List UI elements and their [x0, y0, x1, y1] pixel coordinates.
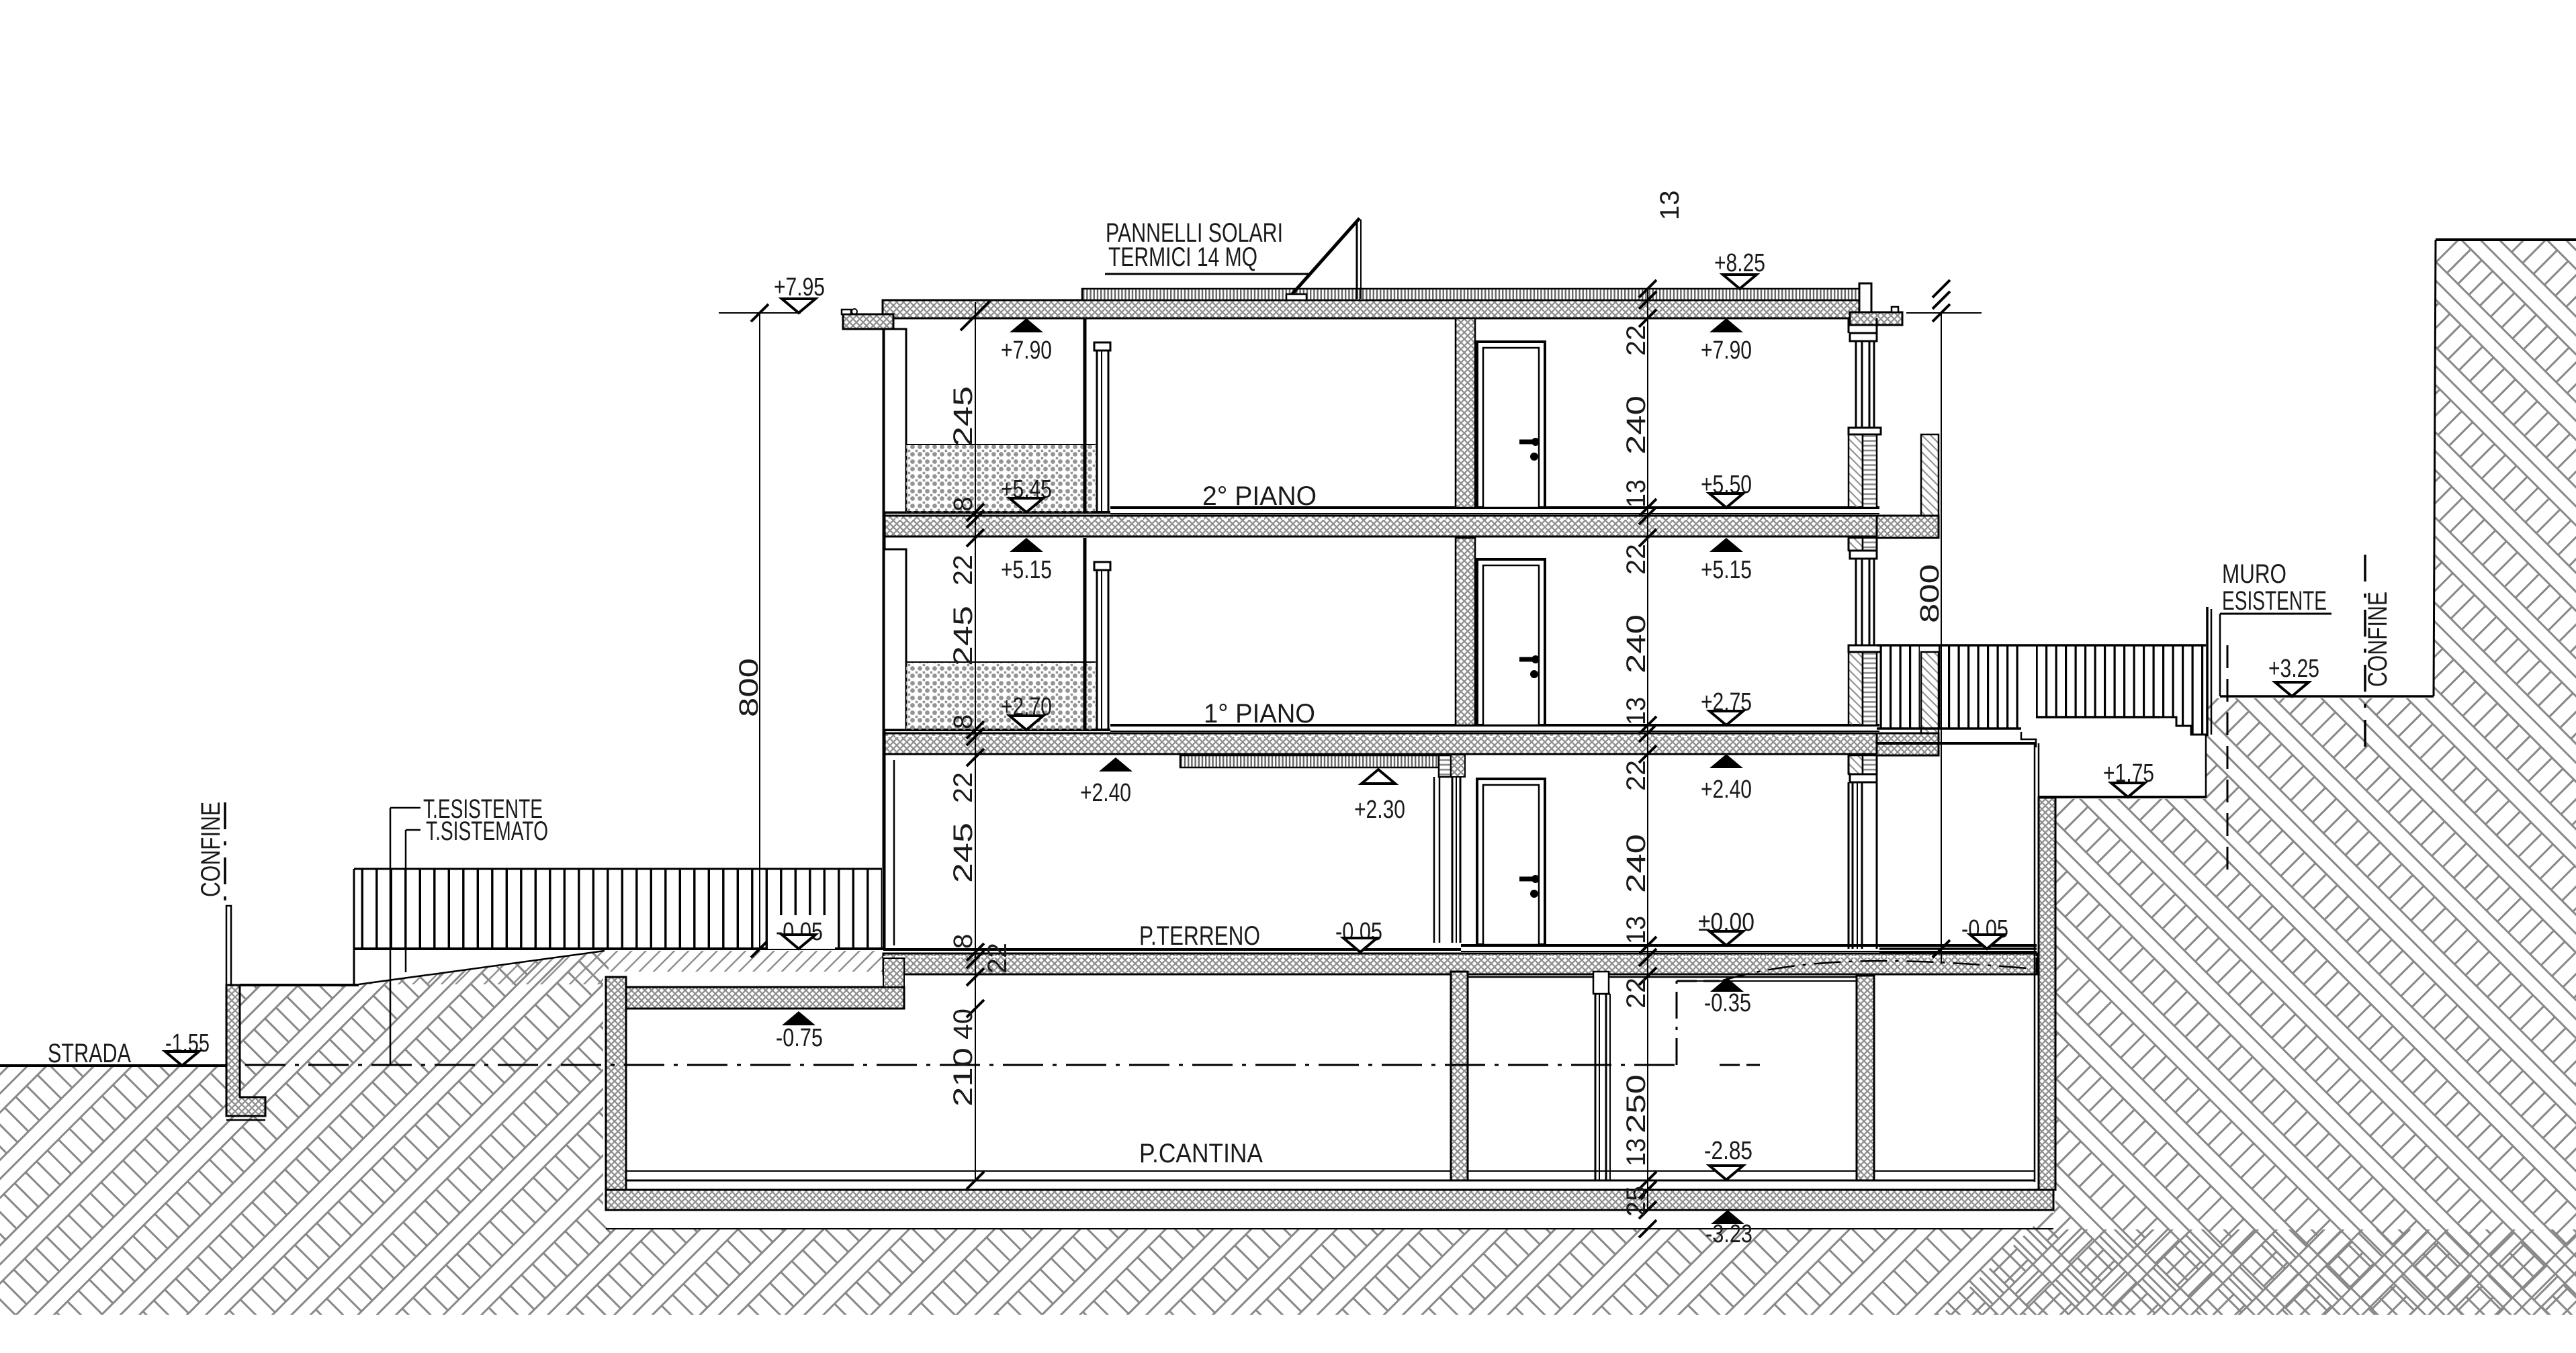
svg-text:8: 8: [948, 497, 978, 512]
svg-text:+2.30: +2.30: [1354, 796, 1405, 824]
svg-text:-0.35: -0.35: [1704, 989, 1751, 1017]
svg-text:13: 13: [1655, 191, 1685, 221]
svg-text:+7.90: +7.90: [1701, 336, 1752, 365]
svg-text:+5.15: +5.15: [1001, 556, 1052, 584]
svg-text:25: 25: [1622, 1186, 1651, 1217]
svg-text:+5.15: +5.15: [1701, 556, 1752, 584]
svg-text:240: 240: [1622, 834, 1651, 893]
svg-text:+7.90: +7.90: [1001, 336, 1052, 365]
svg-text:13: 13: [1622, 697, 1651, 725]
svg-text:13: 13: [1622, 479, 1651, 508]
svg-text:P.TERRENO: P.TERRENO: [1139, 921, 1260, 951]
svg-text:245: 245: [948, 823, 978, 883]
svg-text:210: 210: [948, 1047, 978, 1107]
svg-text:+8.25: +8.25: [1714, 249, 1765, 277]
svg-text:-3.23: -3.23: [1705, 1220, 1752, 1248]
svg-text:8: 8: [948, 934, 978, 949]
svg-text:+3.25: +3.25: [2268, 655, 2319, 683]
svg-text:13: 13: [1622, 1138, 1651, 1166]
svg-text:STRADA: STRADA: [48, 1039, 131, 1068]
svg-text:800: 800: [734, 658, 764, 717]
svg-text:40: 40: [948, 1009, 978, 1039]
svg-text:+2.40: +2.40: [1701, 776, 1752, 804]
svg-text:2° PIANO: 2° PIANO: [1202, 481, 1317, 511]
svg-text:8: 8: [948, 714, 978, 729]
svg-text:T.SISTEMATO: T.SISTEMATO: [426, 817, 548, 846]
svg-text:TERMICI 14 MQ: TERMICI 14 MQ: [1108, 242, 1257, 272]
svg-text:-2.85: -2.85: [1704, 1137, 1752, 1165]
svg-text:CONFINE: CONFINE: [196, 802, 226, 897]
svg-text:MURO: MURO: [2222, 559, 2286, 589]
svg-text:22: 22: [1622, 325, 1651, 356]
svg-text:-0.75: -0.75: [776, 1024, 823, 1052]
svg-text:1° PIANO: 1° PIANO: [1204, 699, 1315, 729]
svg-text:22: 22: [948, 555, 978, 586]
svg-text:CONFINE: CONFINE: [2363, 592, 2393, 687]
svg-text:22: 22: [1622, 544, 1651, 575]
svg-text:245: 245: [948, 386, 978, 447]
svg-text:240: 240: [1622, 614, 1651, 673]
svg-text:+2.40: +2.40: [1080, 779, 1131, 807]
svg-text:22: 22: [1622, 760, 1651, 791]
svg-text:240: 240: [1622, 395, 1651, 455]
svg-text:22: 22: [1622, 978, 1651, 1009]
svg-text:250: 250: [1622, 1074, 1651, 1133]
svg-text:ESISTENTE: ESISTENTE: [2222, 586, 2327, 616]
svg-text:800: 800: [1915, 564, 1945, 623]
svg-text:+7.95: +7.95: [774, 273, 825, 301]
svg-text:13: 13: [1622, 916, 1651, 944]
svg-text:22: 22: [983, 943, 1012, 974]
svg-text:22: 22: [948, 772, 978, 803]
svg-text:245: 245: [948, 606, 978, 666]
svg-text:P.CANTINA: P.CANTINA: [1139, 1139, 1263, 1168]
